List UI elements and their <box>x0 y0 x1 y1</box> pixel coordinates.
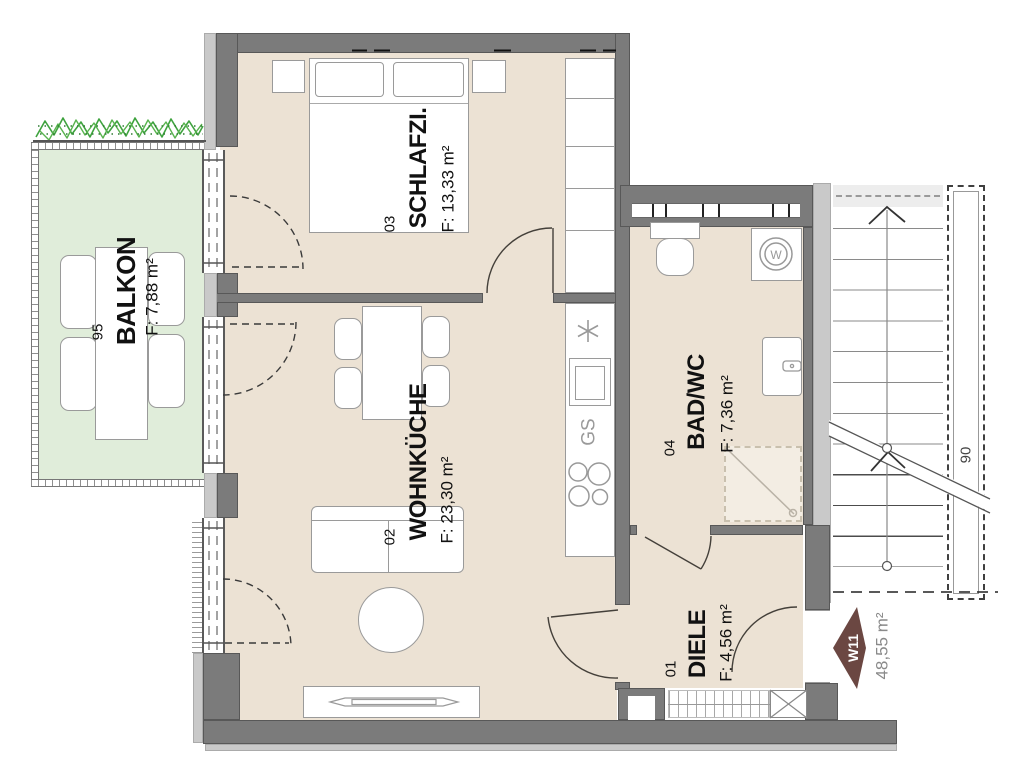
wall-corner-topleft <box>216 33 238 147</box>
wardrobe-shelf <box>566 230 614 231</box>
dishwasher-label: GS <box>580 418 599 445</box>
trim-pier-mid <box>204 273 217 317</box>
oven-inner <box>575 366 605 400</box>
pillow <box>315 62 384 97</box>
wall-right-spine <box>615 33 630 605</box>
unit-id: W11 <box>846 634 860 662</box>
coffee-table-round <box>358 587 424 653</box>
wardrobe-shelf <box>566 146 614 147</box>
stair-railing <box>947 185 985 600</box>
living-name: WOHNKÜCHE <box>407 384 431 541</box>
hedge-icon <box>33 118 206 141</box>
hall-area: F: 4,56 m² <box>718 604 735 681</box>
balcony-area: F: 7,88 m² <box>144 258 161 335</box>
entrance-x-box <box>770 690 807 718</box>
blanket-line <box>310 103 468 104</box>
trim-bottomleft <box>193 653 203 743</box>
balcony-chair <box>148 334 185 408</box>
bedroom-area: F: 13,33 m² <box>440 146 457 233</box>
wall-bottom-edge <box>205 744 897 751</box>
floor-plan: GS W <box>0 0 1029 779</box>
dining-chair <box>334 367 362 409</box>
washing-machine-label: W <box>770 249 781 261</box>
balcony-chair <box>60 337 97 411</box>
balcony-chair <box>60 255 97 329</box>
nightstand-left <box>272 60 305 93</box>
window-living-upper <box>202 317 225 473</box>
wall-bath-bottom-left <box>630 525 637 535</box>
wall-pier-low <box>217 473 238 518</box>
stairwell-number: 90 <box>959 447 974 464</box>
shower <box>724 446 802 522</box>
washbasin <box>762 337 802 396</box>
balcony-name: BALKON <box>113 237 139 345</box>
living-number: 02 <box>383 529 398 546</box>
wall-hall-right-upper <box>805 525 830 610</box>
nightstand-right <box>472 60 506 93</box>
wall-top <box>216 33 628 53</box>
hall-number: 01 <box>664 661 679 678</box>
stair-landing-dashed-line <box>836 195 940 197</box>
bath-name: BAD/WC <box>685 354 709 450</box>
wardrobe-shelf <box>566 188 614 189</box>
door-gap-living-hall <box>615 605 630 682</box>
wall-bedroom-living-left <box>216 293 483 303</box>
balcony-railing-left <box>31 142 39 487</box>
living-area: F: 23,30 m² <box>439 457 456 544</box>
sideboard <box>303 686 480 718</box>
bath-number: 04 <box>663 440 678 457</box>
wall-hall-right-lower <box>805 683 838 720</box>
wall-bath-right <box>803 227 813 525</box>
stair-treads-lower <box>833 474 943 567</box>
pillow <box>393 62 464 97</box>
dining-chair <box>422 316 450 358</box>
bedroom-number: 03 <box>383 216 398 233</box>
balcony-railing-top <box>31 142 205 150</box>
toilet-cistern <box>650 222 700 239</box>
hall-name: DIELE <box>686 610 710 678</box>
trim-pier-low <box>204 473 217 518</box>
window-sill-hatch <box>192 518 202 653</box>
doormat-midline <box>668 704 770 705</box>
toilet-bowl <box>656 238 694 276</box>
wardrobe-shelf <box>566 98 614 99</box>
unit-area: 48,55 m² <box>874 612 891 679</box>
wall-bath-bottom-right <box>710 525 803 535</box>
wall-bottom <box>203 720 897 744</box>
wardrobe <box>565 58 615 293</box>
trim-topleft <box>204 33 216 150</box>
shaft-inner <box>628 696 655 720</box>
balcony-railing-bottom <box>31 479 205 487</box>
entrance-door-opening <box>805 610 830 683</box>
bath-window-band <box>632 203 800 218</box>
balcony-number: 95 <box>91 324 106 341</box>
dining-chair <box>334 318 362 360</box>
window-bedroom <box>202 150 225 273</box>
window-living-lower <box>202 518 225 653</box>
wall-corner-bottomleft <box>203 653 240 720</box>
stair-railing-inner <box>953 191 979 594</box>
bedroom-name: SCHLAFZI. <box>407 108 431 229</box>
bath-area: F: 7,36 m² <box>719 375 736 452</box>
